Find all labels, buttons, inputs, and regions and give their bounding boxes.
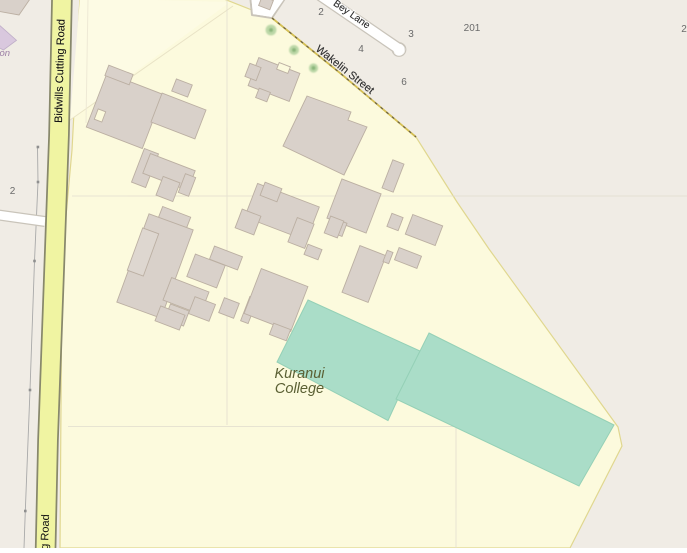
svg-text:4: 4 (358, 44, 364, 55)
svg-text:3: 3 (408, 29, 414, 40)
svg-text:on: on (0, 48, 10, 59)
svg-text:201: 201 (464, 23, 481, 34)
svg-text:g Road: g Road (39, 514, 52, 548)
svg-text:2: 2 (681, 24, 687, 35)
svg-text:College: College (275, 381, 324, 397)
svg-text:Kuranui: Kuranui (275, 366, 326, 382)
svg-text:6: 6 (401, 77, 407, 88)
svg-text:2: 2 (10, 186, 16, 197)
svg-text:2: 2 (318, 7, 324, 18)
